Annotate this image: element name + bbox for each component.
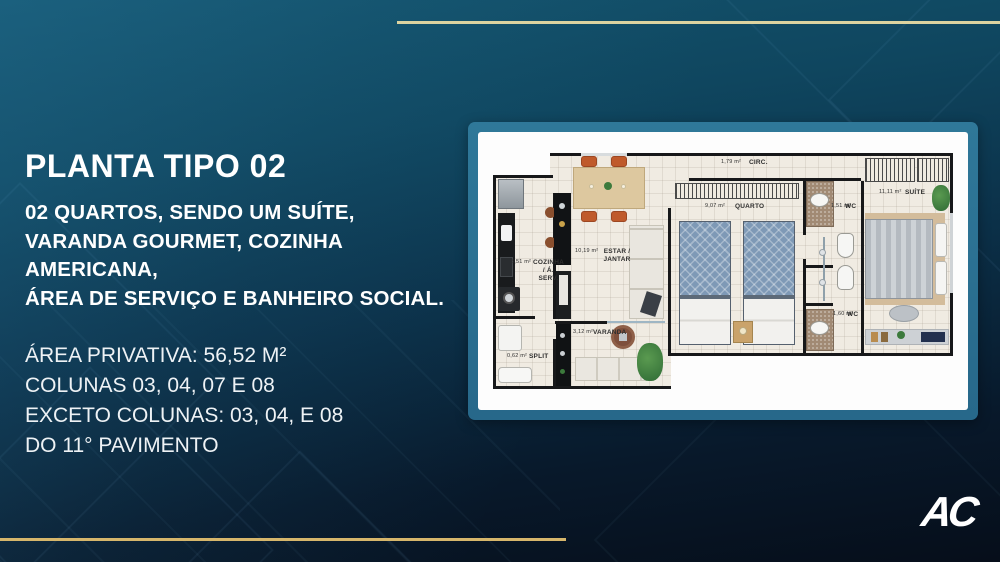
presentation-slide: PLANTA TIPO 02 02 QUARTOS, SENDO UM SUÍT… bbox=[0, 0, 1000, 562]
room-area: 0,62 m² bbox=[507, 353, 527, 360]
wall bbox=[861, 181, 864, 356]
chair bbox=[889, 305, 919, 322]
desk-item bbox=[871, 332, 878, 342]
double-bed bbox=[865, 219, 933, 299]
wardrobe bbox=[865, 158, 915, 182]
room-name: CIRC. bbox=[749, 159, 768, 167]
sink bbox=[810, 321, 829, 335]
detail-line-colunas: COLUNAS 03, 04, 07 E 08 bbox=[25, 371, 475, 401]
glass-door bbox=[607, 321, 665, 323]
room-area: 11,11 m² bbox=[879, 189, 902, 196]
room-area: 10,19 m² bbox=[575, 248, 598, 255]
counter-plant bbox=[560, 369, 565, 374]
dining-chair bbox=[581, 156, 597, 167]
table-plant bbox=[604, 182, 612, 190]
room-area: 1,79 m² bbox=[721, 159, 741, 166]
outside-area bbox=[671, 356, 953, 389]
text-block: PLANTA TIPO 02 02 QUARTOS, SENDO UM SUÍT… bbox=[25, 148, 475, 461]
subtitle-line: 02 QUARTOS, SENDO UM SUÍTE, bbox=[25, 199, 475, 228]
dining-chair bbox=[611, 156, 627, 167]
wardrobe bbox=[675, 183, 799, 199]
wall bbox=[493, 386, 673, 389]
wall bbox=[493, 316, 535, 319]
detail-line-exceto-colunas: EXCETO COLUNAS: 03, 04, E 08 bbox=[25, 401, 475, 431]
wall bbox=[803, 265, 833, 268]
window bbox=[950, 213, 953, 293]
tv bbox=[921, 332, 945, 342]
bar-plate bbox=[559, 221, 565, 227]
room-name: SUÍTE bbox=[905, 189, 925, 197]
wall bbox=[493, 175, 553, 178]
room-area: 9,07 m² bbox=[705, 203, 725, 210]
plant bbox=[932, 185, 950, 211]
gold-accent-line-bottom bbox=[0, 538, 566, 541]
washing-machine-door bbox=[503, 292, 515, 304]
outside-area bbox=[493, 153, 550, 175]
sink bbox=[810, 193, 829, 207]
counter-item bbox=[560, 333, 565, 338]
detail-line-pavimento: DO 11° PAVIMENTO bbox=[25, 431, 475, 461]
pendant-light bbox=[589, 184, 594, 189]
shower-knob bbox=[819, 249, 826, 256]
single-bed bbox=[679, 221, 731, 345]
details: ÁREA PRIVATIVA: 56,52 M² COLUNAS 03, 04,… bbox=[25, 341, 475, 461]
pillow bbox=[935, 261, 947, 295]
refrigerator bbox=[498, 179, 524, 209]
floor-plan: COZINHA / Á. SERV. 5,51 m² SPLIT 0,62 m²… bbox=[493, 153, 953, 389]
room-name: ESTAR / JANTAR bbox=[603, 248, 631, 264]
dining-chair bbox=[611, 211, 627, 222]
kitchen-sink bbox=[501, 225, 512, 241]
subtitle-line: ÁREA DE SERVIÇO E BANHEIRO SOCIAL. bbox=[25, 285, 475, 314]
wall bbox=[668, 208, 671, 356]
shower-knob bbox=[819, 279, 826, 286]
room-area: 5,51 m² bbox=[511, 259, 531, 266]
room-area: 3,12 m² bbox=[573, 329, 593, 336]
desk-plant bbox=[897, 331, 905, 339]
lamp bbox=[739, 327, 747, 335]
wardrobe bbox=[917, 158, 949, 182]
room-area: 1,60 m² bbox=[833, 311, 853, 318]
wall bbox=[689, 178, 861, 181]
subtitle-line: VARANDA GOURMET, COZINHA AMERICANA, bbox=[25, 228, 475, 285]
wall bbox=[493, 175, 496, 389]
ac-logo: AC bbox=[919, 488, 978, 536]
floor-plan-panel: COZINHA / Á. SERV. 5,51 m² SPLIT 0,62 m²… bbox=[468, 122, 978, 420]
toilet bbox=[837, 265, 854, 290]
room-area: 1,51 m² bbox=[831, 203, 851, 210]
room-name: VARANDA bbox=[593, 329, 626, 337]
detail-line-area-privativa: ÁREA PRIVATIVA: 56,52 M² bbox=[25, 341, 475, 371]
desk-item bbox=[881, 332, 888, 342]
page-title: PLANTA TIPO 02 bbox=[25, 148, 475, 185]
shower-glass bbox=[823, 237, 825, 301]
dining-chair bbox=[581, 211, 597, 222]
wall bbox=[803, 303, 833, 306]
room-name: COZINHA / Á. SERV. bbox=[533, 259, 564, 282]
laundry-sink bbox=[498, 325, 522, 351]
toilet bbox=[837, 233, 854, 258]
bar-plate bbox=[559, 203, 565, 209]
room-name: QUARTO bbox=[735, 203, 764, 211]
subtitle: 02 QUARTOS, SENDO UM SUÍTE, VARANDA GOUR… bbox=[25, 199, 475, 313]
room-name: SPLIT bbox=[529, 353, 548, 361]
counter-item bbox=[560, 351, 565, 356]
plant bbox=[637, 343, 663, 381]
wall bbox=[668, 353, 953, 356]
split-unit bbox=[498, 367, 532, 383]
gold-accent-line-top bbox=[397, 21, 1000, 24]
pendant-light bbox=[621, 184, 626, 189]
pillow bbox=[935, 223, 947, 257]
floor-plan-frame: COZINHA / Á. SERV. 5,51 m² SPLIT 0,62 m²… bbox=[478, 132, 968, 410]
